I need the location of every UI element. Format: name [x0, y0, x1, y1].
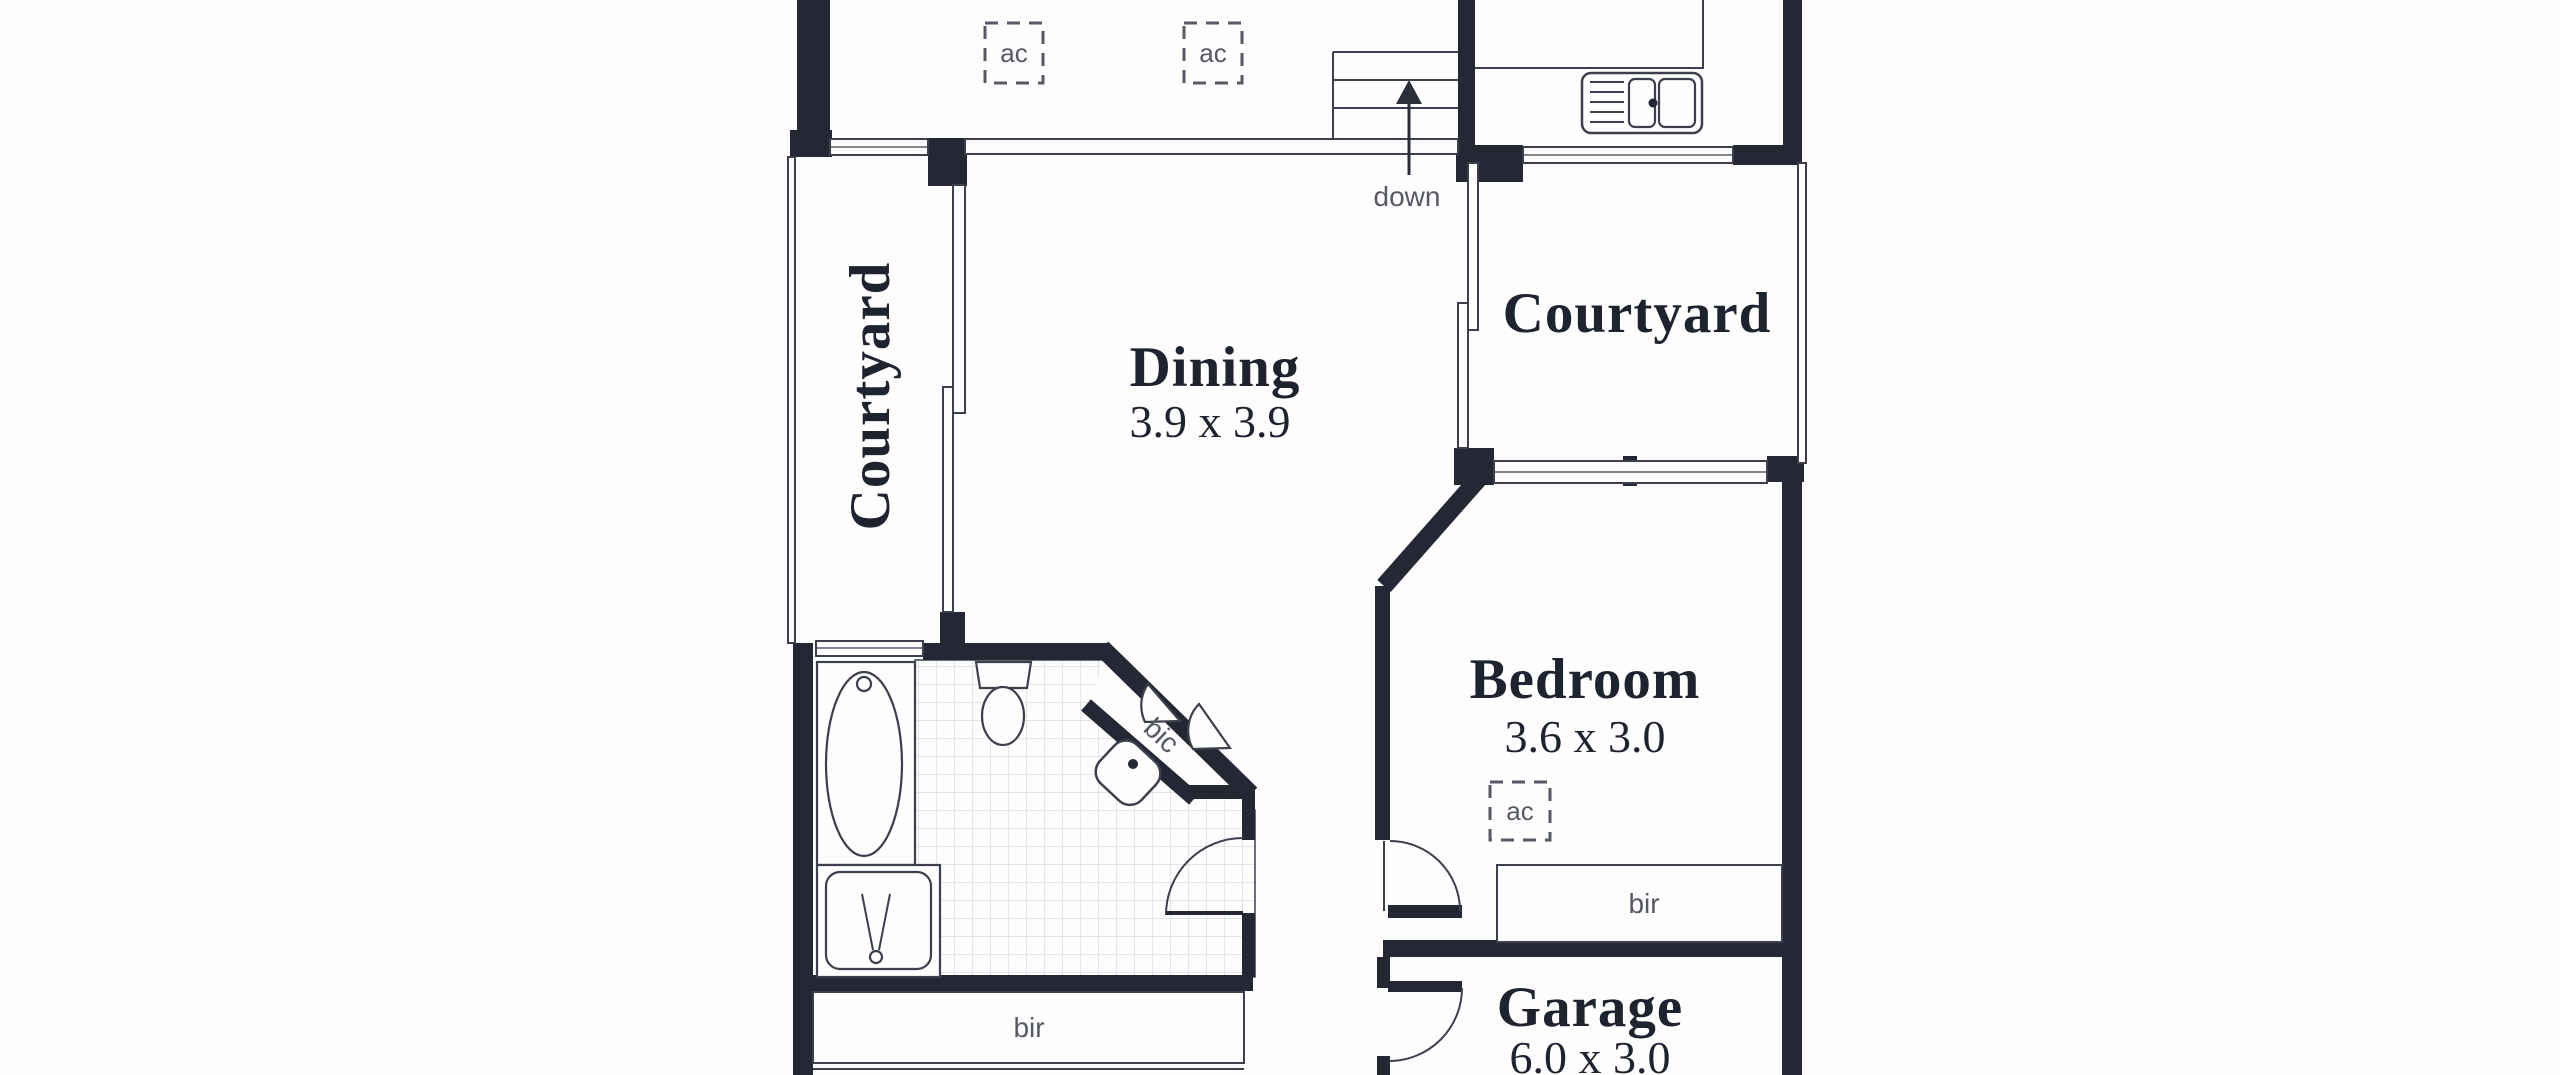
bathtub-basin — [826, 672, 902, 856]
bathtub-drain — [857, 677, 871, 691]
kitchen-counter — [1475, 0, 1703, 68]
bic-hanging-space — [1188, 704, 1230, 749]
room-label-courtyard-right: Courtyard — [1503, 282, 1772, 345]
courtyard-fence — [1458, 303, 1468, 448]
wall — [1456, 145, 1523, 182]
bay-diagonal-wall — [1384, 467, 1489, 586]
sink-tap — [1649, 99, 1658, 108]
room-label-garage: Garage — [1497, 976, 1683, 1039]
wall — [1783, 0, 1802, 165]
wall — [1733, 145, 1785, 165]
wall — [1375, 586, 1390, 840]
wall — [1242, 913, 1255, 977]
toilet-cistern — [976, 662, 1031, 688]
wall — [790, 130, 832, 157]
room-label-dining: Dining — [1130, 336, 1301, 399]
wall — [1458, 0, 1475, 148]
garage-door-leaf — [1388, 981, 1462, 992]
courtyard-partition — [953, 185, 965, 413]
wall — [793, 643, 813, 1075]
room-label-courtyard-left: Courtyard — [839, 262, 902, 531]
kitchen — [1475, 0, 1703, 133]
wall — [928, 138, 967, 186]
courtyard-fence — [788, 157, 795, 643]
garage-door-arc — [1389, 988, 1462, 1061]
room-dims-dining: 3.9 x 3.9 — [1130, 396, 1291, 447]
wall — [1388, 905, 1462, 918]
dining-top-partition — [965, 139, 1458, 154]
bir-label-lower: bir — [1013, 1012, 1044, 1043]
staircase — [1333, 52, 1458, 175]
courtyard-fence — [1798, 163, 1806, 463]
ac-label: ac — [1199, 38, 1226, 68]
toilet-bowl — [982, 687, 1024, 745]
bedroom-door-arc — [1390, 841, 1460, 911]
sink-basin — [1659, 79, 1695, 127]
basin-tap — [1128, 759, 1138, 769]
wall — [1782, 460, 1802, 1075]
room-dims-garage: 6.0 x 3.0 — [1510, 1032, 1671, 1075]
floor-plan: Courtyard Dining 3.9 x 3.9 Courtyard Bed… — [0, 0, 2560, 1075]
wall — [797, 0, 830, 140]
courtyard-fence — [1468, 163, 1478, 330]
wall — [940, 612, 965, 647]
courtyard-partition — [943, 387, 953, 612]
floor-plan-page: Courtyard Dining 3.9 x 3.9 Courtyard Bed… — [0, 0, 2560, 1075]
down-arrow-head — [1396, 80, 1422, 104]
shower-drain — [870, 951, 882, 963]
room-dims-bedroom: 3.6 x 3.0 — [1505, 711, 1666, 762]
ac-label: ac — [1506, 796, 1533, 826]
wall — [1377, 1056, 1390, 1075]
bir-label-bedroom: bir — [1628, 888, 1659, 919]
down-label: down — [1374, 181, 1441, 212]
ac-label: ac — [1000, 38, 1027, 68]
room-label-bedroom: Bedroom — [1470, 648, 1701, 711]
